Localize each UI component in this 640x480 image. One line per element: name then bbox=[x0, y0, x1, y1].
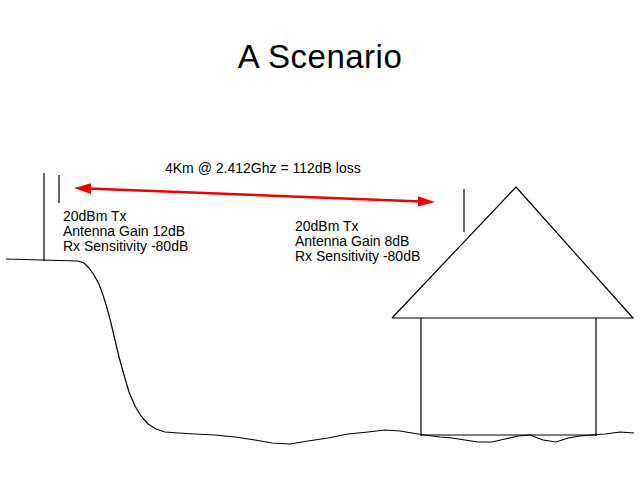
radio-link-line bbox=[88, 189, 421, 202]
left-station-specs: 20dBm Tx Antenna Gain 12dB Rx Sensitivit… bbox=[63, 209, 188, 255]
right-station-antenna-gain: Antenna Gain 8dB bbox=[295, 234, 420, 249]
house-body bbox=[421, 318, 596, 436]
link-loss-label: 4Km @ 2.412Ghz = 112dB loss bbox=[165, 161, 361, 176]
right-station-tx-power: 20dBm Tx bbox=[295, 219, 420, 234]
right-station-rx-sensitivity: Rx Sensitivity -80dB bbox=[295, 249, 420, 264]
house-roof bbox=[392, 187, 633, 318]
left-station-antenna-gain: Antenna Gain 12dB bbox=[63, 224, 188, 239]
arrowhead-right bbox=[418, 196, 435, 206]
slide-canvas: A Scenario 4Km @ 2.412Ghz = 112dB loss 2… bbox=[0, 0, 640, 480]
left-station-rx-sensitivity: Rx Sensitivity -80dB bbox=[63, 239, 188, 254]
right-station-specs: 20dBm Tx Antenna Gain 8dB Rx Sensitivity… bbox=[295, 219, 420, 265]
radio-link-arrow bbox=[74, 183, 435, 206]
left-station-tx-power: 20dBm Tx bbox=[63, 209, 188, 224]
terrain-outline bbox=[6, 259, 634, 444]
arrowhead-left bbox=[74, 183, 91, 194]
